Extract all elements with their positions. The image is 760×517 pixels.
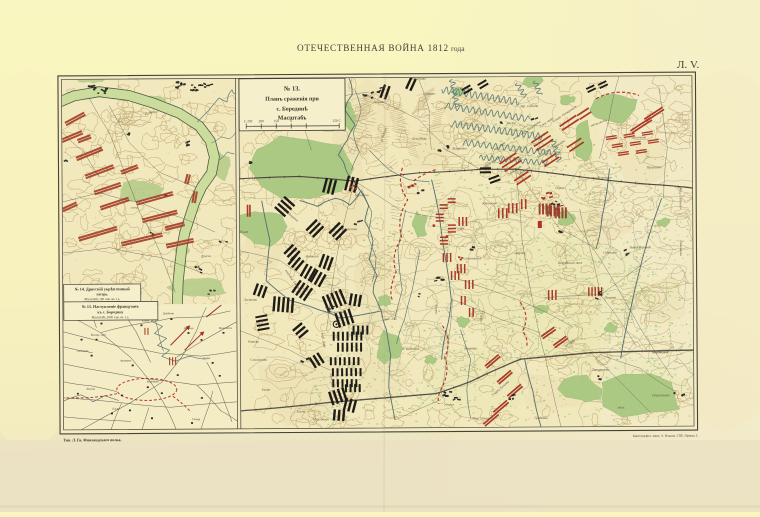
svg-text:Мал. Соболево: Мал. Соболево xyxy=(679,187,683,209)
svg-text:Криушино: Криушино xyxy=(646,165,662,169)
svg-text:С.250: С.250 xyxy=(244,119,253,123)
svg-text:Татариново: Татариново xyxy=(592,368,610,372)
svg-text:Планъ сраженія при: Планъ сраженія при xyxy=(265,96,319,102)
svg-text:Малое: Малое xyxy=(506,121,517,125)
svg-text:Дрисса: Дрисса xyxy=(200,254,211,258)
svg-text:№ 13.: № 13. xyxy=(284,85,300,92)
svg-text:Утица: Утица xyxy=(192,417,201,421)
svg-text:Фомкино: Фомкино xyxy=(120,359,132,363)
svg-text:б.: б. xyxy=(118,119,121,123)
svg-text:Алексинки: Алексинки xyxy=(341,227,357,231)
svg-text:Бородино: Бородино xyxy=(146,379,159,383)
svg-text:Тип. Л. Гв. Финляндскаго полка: Тип. Л. Гв. Финляндскаго полка. xyxy=(63,438,121,442)
svg-text:№ 14. Дрисскій укрѣпленный: № 14. Дрисскій укрѣпленный xyxy=(75,286,131,291)
svg-text:Романцево: Романцево xyxy=(679,239,683,256)
svg-text:Можайскъ: Можайскъ xyxy=(218,326,233,330)
svg-text:Успенское: Успенское xyxy=(597,176,612,180)
svg-text:Мал. Утица: Мал. Утица xyxy=(471,416,490,420)
svg-text:Утица: Утица xyxy=(444,403,454,407)
svg-text:Колоцк. мон.: Колоцк. мон. xyxy=(90,333,107,337)
svg-text:Горки: Горки xyxy=(554,186,564,190)
svg-text:Сокольники: Сокольники xyxy=(250,358,267,362)
svg-text:Князьково: Князьково xyxy=(481,201,497,205)
svg-text:д. Каменка: д. Каменка xyxy=(403,347,419,351)
svg-text:Ельня: Ельня xyxy=(296,409,306,413)
svg-text:къ с. Бородину: къ с. Бородину xyxy=(97,310,123,314)
svg-text:лагерь.: лагерь. xyxy=(96,292,108,296)
svg-text:Каменка: Каменка xyxy=(463,346,477,350)
svg-text:Мордвиново: Мордвиново xyxy=(651,350,670,354)
svg-text:Перхушково: Перхушково xyxy=(651,393,670,397)
svg-text:Картографич. завед. А. Ильина.: Картографич. завед. А. Ильина. СПБ. Пряж… xyxy=(633,434,698,438)
svg-text:Масштабъ 100 саж. въ 1 д.: Масштабъ 100 саж. въ 1 д. xyxy=(84,297,120,301)
svg-text:Горнево: Горнево xyxy=(422,92,435,96)
svg-text:Фомкино: Фомкино xyxy=(305,254,318,258)
svg-text:Валуево: Валуево xyxy=(184,326,194,330)
svg-text:Гриднево: Гриднево xyxy=(162,311,175,315)
svg-text:года: года xyxy=(451,44,465,53)
svg-text:Захарьино: Захарьино xyxy=(452,146,467,150)
svg-text:Беззубово: Беззубово xyxy=(411,137,426,141)
svg-text:Кн. горки: Кн. горки xyxy=(547,211,562,215)
svg-text:Мих. дворъ: Мих. дворъ xyxy=(312,417,329,421)
svg-text:Масштабъ: Масштабъ xyxy=(278,114,307,121)
svg-text:лагерь: лагерь xyxy=(130,205,140,209)
svg-text:лѣсъ: лѣсъ xyxy=(616,405,624,409)
svg-text:Горки: Горки xyxy=(202,356,211,360)
svg-text:Ельня: Ельня xyxy=(239,230,249,234)
svg-text:гвардія: гвардія xyxy=(515,251,526,255)
svg-text:Псаревский лѣсъ: Псаревский лѣсъ xyxy=(557,260,583,265)
svg-text:Ратово: Ратово xyxy=(247,340,259,344)
svg-text:5 корп.: 5 корп. xyxy=(479,312,483,322)
svg-text:№ 15. Наступленіе французовъ: № 15. Наступленіе французовъ xyxy=(82,304,140,309)
svg-text:Валуево: Валуево xyxy=(373,100,385,104)
svg-text:Гжатскъ: Гжатскъ xyxy=(76,349,89,353)
svg-text:Ельня: Ельня xyxy=(111,407,120,411)
svg-text:Кубино: Кубино xyxy=(459,86,471,90)
svg-text:Логиново: Логиново xyxy=(243,298,258,302)
svg-text:Новая деревня: Новая деревня xyxy=(629,245,651,249)
svg-text:Себякино: Себякино xyxy=(603,251,617,255)
svg-text:с. Бородинѣ: с. Бородинѣ xyxy=(276,105,308,112)
svg-text:Бородино: Бородино xyxy=(354,193,369,197)
svg-text:Шевардино: Шевардино xyxy=(327,310,345,314)
svg-text:250 С.: 250 С. xyxy=(333,119,342,123)
svg-text:Ельня: Ельня xyxy=(261,388,271,392)
svg-text:Масштабъ 2000 саж. въ 1 д.: Масштабъ 2000 саж. въ 1 д. xyxy=(92,315,130,319)
svg-text:Л. V.: Л. V. xyxy=(677,59,699,71)
svg-text:Семеновское: Семеновское xyxy=(463,256,482,260)
svg-text:выс. 250: выс. 250 xyxy=(384,317,396,321)
svg-text:200: 200 xyxy=(259,119,264,123)
svg-text:8 корп.: 8 корп. xyxy=(434,305,438,315)
svg-text:Зар. слобода: Зар. слобода xyxy=(520,104,538,108)
svg-text:150: 150 xyxy=(274,119,279,123)
svg-text:Псарево: Псарево xyxy=(603,296,616,300)
svg-text:ополченіе: ополченіе xyxy=(632,135,646,139)
svg-text:ОТЕЧЕСТВЕННАЯ ВОЙНА 1812: ОТЕЧЕСТВЕННАЯ ВОЙНА 1812 xyxy=(297,43,449,53)
svg-text:7 корп.: 7 корп. xyxy=(455,226,465,230)
svg-text:Колочa: Колочa xyxy=(85,387,95,391)
svg-text:Гриднево: Гриднево xyxy=(533,416,548,420)
